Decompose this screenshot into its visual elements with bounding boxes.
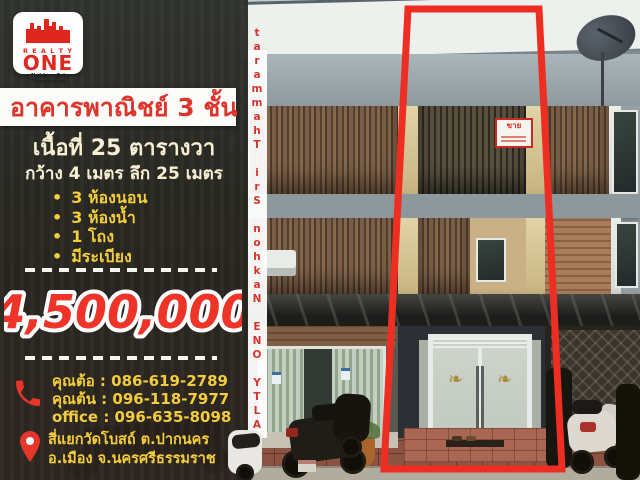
location-block: สี่แยกวัดโบสถ์ ต.ปากนคร อ.เมือง จ.นครศรี…	[48, 431, 216, 469]
motorcycle	[616, 384, 640, 480]
location-pin-icon	[18, 430, 42, 464]
door-mat	[446, 440, 504, 447]
price: 4,500,000	[4, 276, 242, 350]
door-handle	[481, 366, 484, 428]
balcony-screen-subject	[418, 218, 470, 296]
motorcycle	[560, 386, 624, 476]
shoes	[466, 436, 476, 441]
skyline-icon	[24, 17, 72, 43]
contact-line: office : 096-635-8098	[52, 408, 231, 426]
window	[612, 110, 638, 194]
shoes	[452, 436, 462, 441]
contact-line: คุณต้อ : 086-619-2789	[52, 372, 231, 390]
location-line: อ.เมือง จ.นครศรีธรรมราช	[48, 450, 216, 469]
satellite-dish-pole	[601, 52, 604, 106]
motorcycle	[224, 424, 266, 480]
gold-decal: ❧	[448, 368, 462, 392]
wood-panel-right	[545, 218, 611, 296]
metal-awning	[248, 294, 640, 326]
title-band: อาคารพาณิชย์ 3 ชั้น	[0, 88, 236, 126]
window	[476, 238, 506, 282]
dashed-divider	[25, 268, 217, 272]
sale-sign-text: ขาย	[497, 120, 531, 132]
listing-title: อาคารพาณิชย์ 3 ชั้น	[0, 88, 236, 128]
logo-one-text: ONE	[13, 55, 83, 72]
vertical-brand-text: tarammahT irS nohkaN ENO YTLAER	[251, 27, 263, 461]
dashed-divider	[25, 356, 217, 360]
contact-line: คุณต้น : 096-118-7977	[52, 390, 231, 408]
feature-list: 3 ห้องนอน 3 ห้องน้ำ 1 โถง มีระเบียง	[52, 188, 147, 266]
realty-one-logo: R E A L T Y ONE Nakhon Sri Thammarat	[13, 12, 83, 74]
location-line: สี่แยกวัดโบสถ์ ต.ปากนคร	[48, 431, 216, 450]
floor-slab	[248, 194, 640, 218]
door-handle	[476, 366, 479, 428]
window	[615, 222, 638, 288]
roll-shutter-left	[250, 326, 396, 346]
feature-item: 1 โถง	[52, 227, 147, 247]
air-conditioner	[262, 250, 296, 276]
svg-text:4,500,000: 4,500,000	[4, 285, 242, 339]
feature-item: มีระเบียง	[52, 247, 147, 267]
upper-wall	[248, 54, 640, 106]
contact-block: คุณต้อ : 086-619-2789 คุณต้น : 096-118-7…	[52, 372, 231, 426]
phone-icon	[12, 378, 44, 410]
feature-item: 3 ห้องน้ำ	[52, 208, 147, 228]
sale-sign: ขาย	[495, 118, 533, 148]
vertical-brand-strip: tarammahT irS nohkaN ENO YTLAER	[247, 50, 267, 438]
info-panel: R E A L T Y ONE Nakhon Sri Thammarat อาค…	[0, 0, 248, 480]
balcony-screen-right	[545, 106, 609, 194]
pillar	[526, 218, 545, 296]
dimensions-text: กว้าง 4 เมตร ลึก 25 เมตร	[0, 160, 248, 187]
gold-decal: ❧	[497, 368, 511, 392]
flyer-canvas: ❧ ❧	[0, 0, 640, 480]
pillar	[398, 218, 418, 296]
door-vent	[433, 338, 527, 346]
balcony-screen-left	[250, 106, 398, 194]
sticker	[341, 368, 350, 380]
sticker	[272, 372, 281, 384]
pillar	[398, 106, 418, 194]
feature-item: 3 ห้องนอน	[52, 188, 147, 208]
motorcycle	[328, 382, 376, 456]
